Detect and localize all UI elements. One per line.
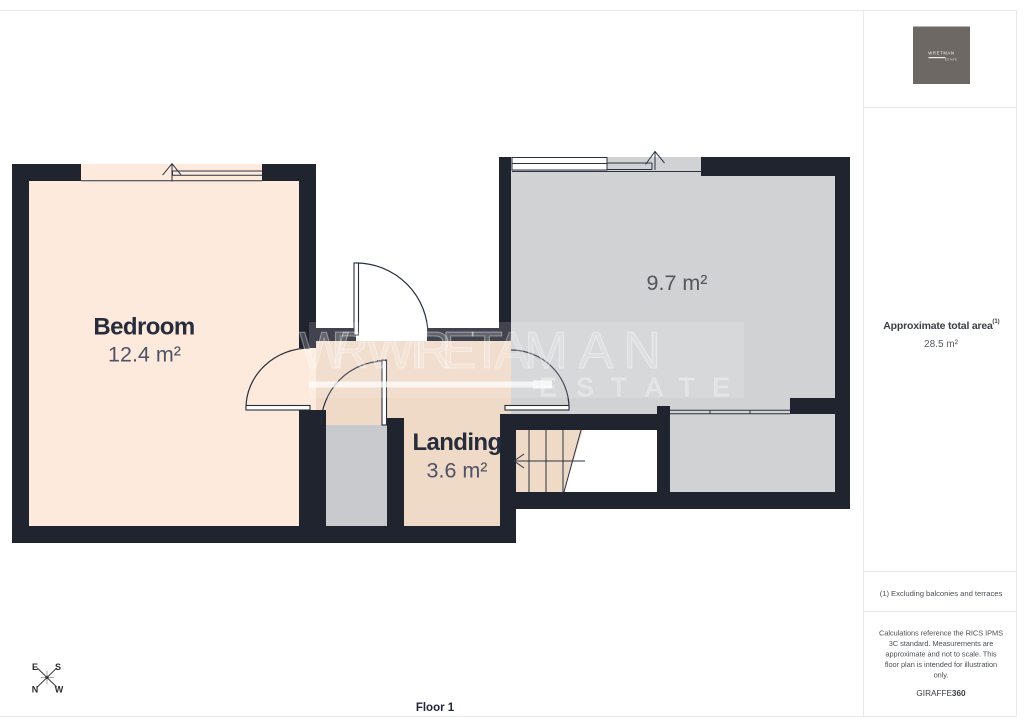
svg-text:W: W [55,685,64,695]
svg-text:ESTATE: ESTATE [945,57,957,61]
svg-text:T: T [611,372,627,402]
svg-text:Approximate total area: Approximate total area [883,320,993,332]
svg-text:3.6 m²: 3.6 m² [427,459,488,483]
svg-text:(1) Excluding balconies and te: (1) Excluding balconies and terraces [880,589,1003,598]
svg-text:E: E [539,372,556,402]
svg-text:R: R [331,322,369,380]
svg-text:9.7 m²: 9.7 m² [647,271,708,295]
svg-text:T: T [679,372,695,402]
svg-text:GIRAFFE360: GIRAFFE360 [916,689,966,698]
svg-text:Calculations reference the RIC: Calculations reference the RICS IPMS [879,629,1003,638]
svg-text:A: A [645,372,663,402]
svg-text:S: S [576,372,593,402]
svg-text:12.4 m²: 12.4 m² [108,343,181,367]
svg-text:Bedroom: Bedroom [93,314,194,341]
svg-text:only.: only. [934,671,949,680]
svg-text:Floor 1: Floor 1 [416,702,455,714]
svg-text:W: W [365,322,414,380]
svg-text:Landing: Landing [412,429,501,456]
svg-text:E: E [32,662,38,672]
svg-text:28.5 m²: 28.5 m² [924,339,959,350]
svg-text:3C standard. Measurements are: 3C standard. Measurements are [889,639,994,648]
svg-text:E: E [712,372,729,402]
svg-text:(1): (1) [992,319,999,325]
svg-text:S: S [55,662,61,672]
svg-text:N: N [32,685,39,695]
svg-text:approximate and not to scale.: approximate and not to scale. This [885,650,996,659]
svg-text:WRETMAN: WRETMAN [928,51,955,56]
svg-text:floor plan is intended for ill: floor plan is intended for illustration [885,660,997,669]
